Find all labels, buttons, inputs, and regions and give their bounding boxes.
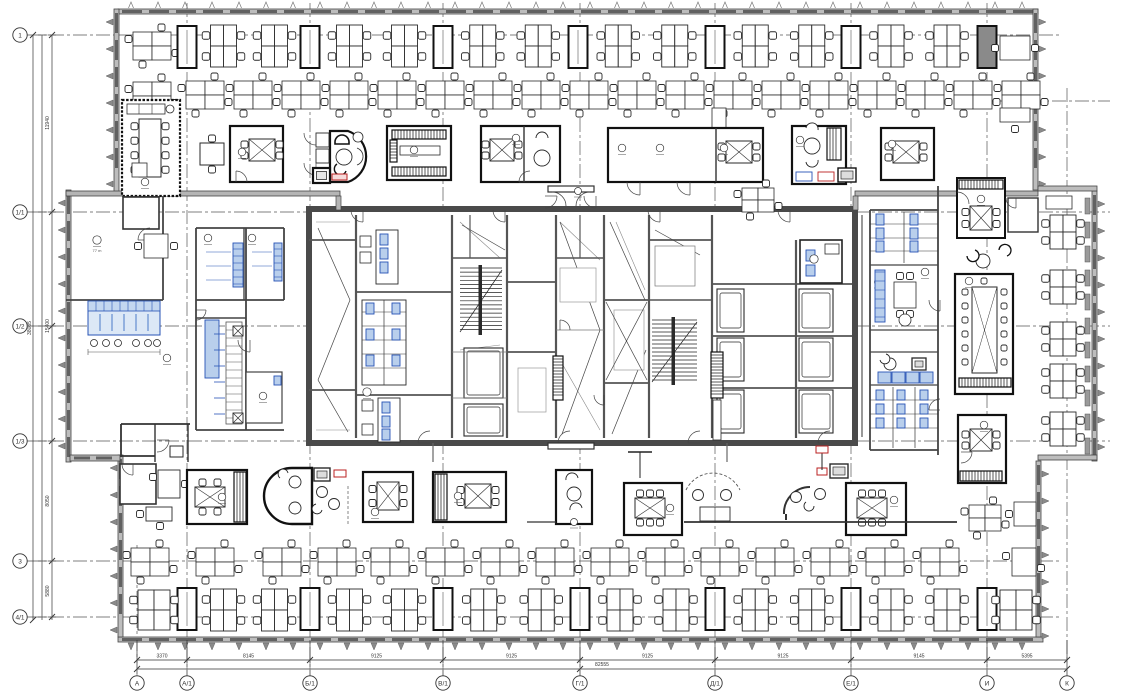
svg-text:В/1: В/1 (438, 681, 448, 688)
svg-text:4/1: 4/1 (15, 615, 24, 622)
svg-text:Е/1: Е/1 (846, 681, 856, 688)
svg-text:8145: 8145 (243, 654, 254, 660)
svg-text:1/2: 1/2 (15, 324, 24, 331)
svg-text:38085: 38085 (27, 321, 33, 335)
svg-text:9125: 9125 (777, 654, 788, 660)
svg-text:1: 1 (18, 33, 22, 40)
svg-text:Б/1: Б/1 (305, 681, 315, 688)
svg-text:3: 3 (18, 559, 22, 566)
svg-text:9125: 9125 (371, 654, 382, 660)
svg-text:9125: 9125 (642, 654, 653, 660)
svg-text:К: К (1065, 681, 1069, 688)
svg-text:8050: 8050 (45, 495, 51, 506)
svg-text:11940: 11940 (45, 116, 51, 130)
svg-text:1/1: 1/1 (15, 210, 24, 217)
svg-text:5395: 5395 (1021, 654, 1032, 660)
svg-text:А: А (135, 681, 140, 688)
svg-text:9145: 9145 (913, 654, 924, 660)
svg-text:77 m: 77 m (93, 248, 103, 253)
svg-text:3370: 3370 (156, 654, 167, 660)
svg-text:9125: 9125 (506, 654, 517, 660)
svg-text:И: И (985, 681, 990, 688)
svg-text:Г/1: Г/1 (576, 681, 585, 688)
svg-text:82555: 82555 (595, 662, 609, 668)
svg-text:5880: 5880 (45, 585, 51, 596)
svg-text:А/1: А/1 (182, 681, 192, 688)
svg-text:Д/1: Д/1 (710, 681, 720, 688)
svg-text:1/3: 1/3 (15, 439, 24, 446)
svg-text:15400: 15400 (45, 319, 51, 333)
